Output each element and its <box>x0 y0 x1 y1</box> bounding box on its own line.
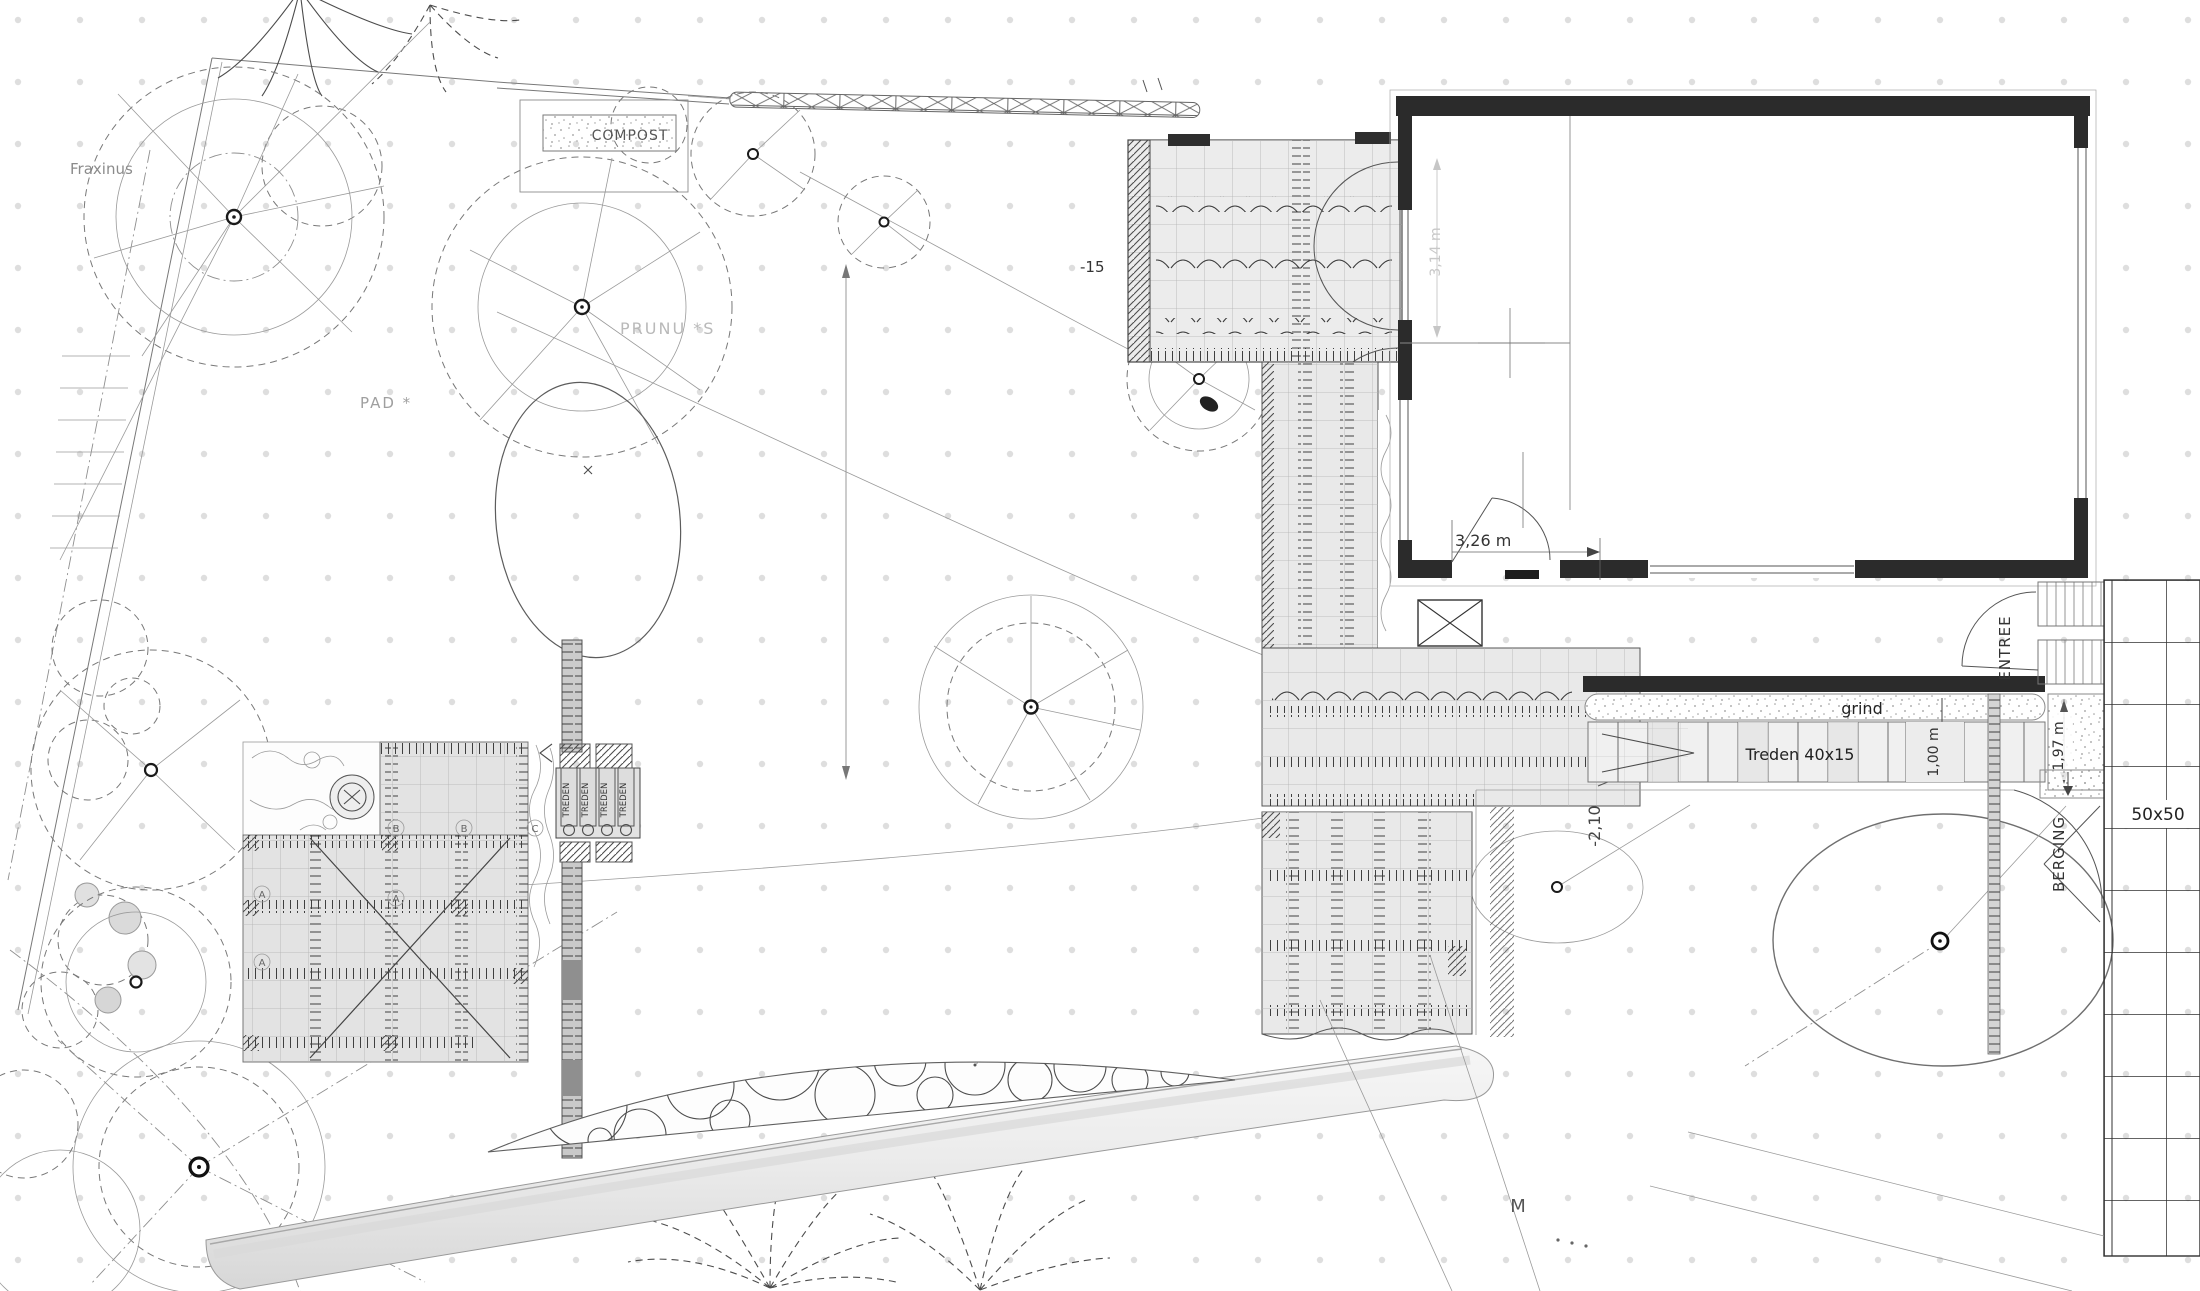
stairs-label: Treden 40x15 <box>1745 745 1855 764</box>
terrace-mark: A <box>259 890 266 901</box>
entree-label: ENTREE <box>1996 615 2014 680</box>
pad-label: PAD * <box>360 394 412 412</box>
pergola-level-label: -15 <box>1080 258 1105 276</box>
treden-step-label: TREDEN <box>562 783 572 819</box>
left-terrace-sketch: B B C A A A <box>243 742 554 1062</box>
treden-step-label: TREDEN <box>619 783 629 819</box>
terrace-mark: B <box>393 824 400 835</box>
prunus-label: PRUNU *S <box>620 319 715 338</box>
terrace-mark: A <box>259 958 266 969</box>
compost-label: COMPOST <box>592 128 669 144</box>
plan-drawing: B B C A A A <box>0 0 2200 1291</box>
terrace-mark: A <box>393 894 400 905</box>
treden-step-label: TREDEN <box>581 783 591 819</box>
entry-pad-dimension: 1,97 m <box>2051 721 2067 770</box>
treden-step-label: TREDEN <box>600 783 610 819</box>
fraxinus-label: Fraxinus <box>70 160 133 178</box>
grind-label: grind <box>1841 699 1882 718</box>
window-width-dimension: 3,14 m <box>1428 227 1444 276</box>
tile-size-label: 50x50 <box>2131 805 2184 825</box>
terrace-mark: C <box>532 824 539 835</box>
terrace-level-label: -2,10 <box>1585 805 1604 846</box>
house-floorplan <box>1390 90 2096 586</box>
berging-label: BERGING <box>2050 816 2068 892</box>
door-width-dimension: 3,26 m <box>1455 531 1511 550</box>
m-mark-label: M <box>1510 1196 1526 1217</box>
landscape-plan-canvas: B B C A A A <box>0 0 2200 1291</box>
terrace-mark: B <box>461 824 468 835</box>
stair-landing-dimension: 1,00 m <box>1926 727 1942 776</box>
